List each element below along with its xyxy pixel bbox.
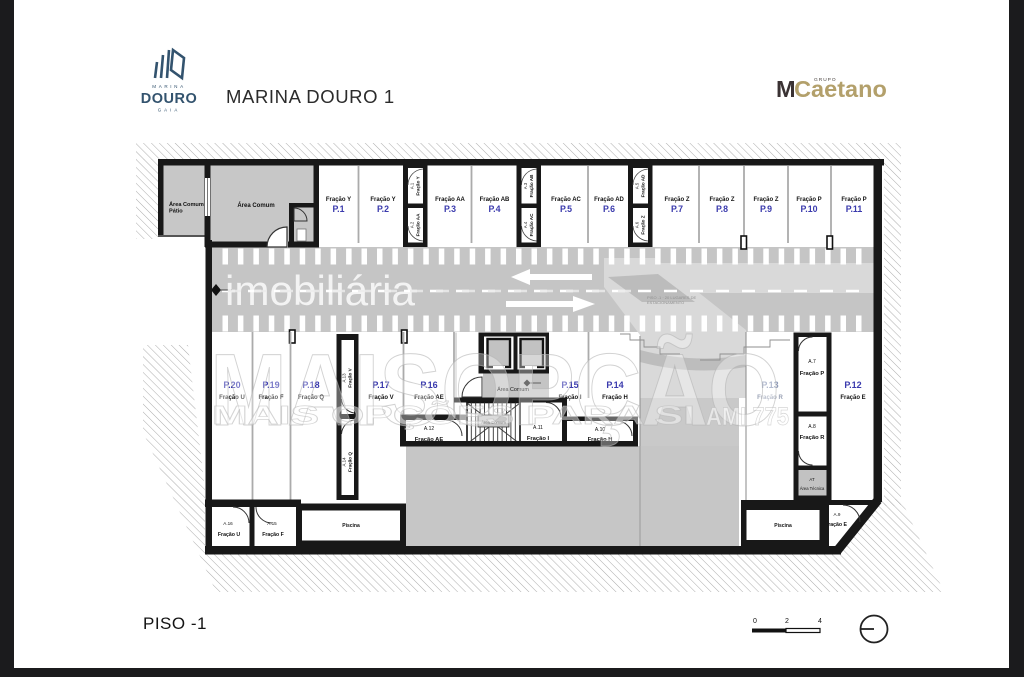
svg-text:MARINA: MARINA xyxy=(152,84,185,89)
svg-text:Fração Z: Fração Z xyxy=(664,197,689,203)
svg-text:MAIS OPÇÕES PARA SI: MAIS OPÇÕES PARA SI xyxy=(212,400,695,430)
svg-text:2: 2 xyxy=(785,618,789,625)
svg-text:P.6: P.6 xyxy=(603,204,615,214)
svg-text:Fração P: Fração P xyxy=(800,371,825,377)
svg-text:Fração AC: Fração AC xyxy=(529,213,534,236)
svg-text:Fração AC: Fração AC xyxy=(551,197,581,203)
svg-text:A.6: A.6 xyxy=(635,221,640,228)
svg-text:P.5: P.5 xyxy=(560,204,572,214)
svg-text:MARINA DOURO 1: MARINA DOURO 1 xyxy=(226,86,395,107)
svg-text:GAIA: GAIA xyxy=(158,108,181,113)
svg-text:PISO -1: PISO -1 xyxy=(143,614,207,633)
svg-text:A.2: A.2 xyxy=(410,221,415,228)
svg-text:P.11: P.11 xyxy=(846,204,863,214)
svg-text:Fração Z: Fração Z xyxy=(641,215,646,234)
svg-text:MCaetano: MCaetano xyxy=(776,76,887,102)
svg-text:A.14: A.14 xyxy=(342,457,347,467)
svg-text:Piscina: Piscina xyxy=(774,523,792,529)
svg-text:Fração AD: Fração AD xyxy=(641,174,646,197)
svg-text:A.4: A.4 xyxy=(523,221,528,228)
svg-text:Fração E: Fração E xyxy=(840,395,865,401)
svg-text:A.8: A.8 xyxy=(808,424,816,430)
svg-text:P.1: P.1 xyxy=(332,204,344,214)
svg-text:Fração AA: Fração AA xyxy=(416,213,421,236)
svg-text:P.4: P.4 xyxy=(488,204,500,214)
svg-text:A.1: A.1 xyxy=(410,182,415,189)
svg-text:A.16: A.16 xyxy=(223,521,233,526)
svg-text:4: 4 xyxy=(818,618,822,625)
svg-text:P.12: P.12 xyxy=(844,380,861,390)
svg-text:Fração Q: Fração Q xyxy=(348,452,353,472)
svg-text:P.3: P.3 xyxy=(444,204,456,214)
svg-text:A.9: A.9 xyxy=(834,512,841,517)
svg-text:Fração AB: Fração AB xyxy=(529,174,534,197)
svg-text:P.9: P.9 xyxy=(760,204,772,214)
svg-text:Fração Y: Fração Y xyxy=(326,197,351,203)
svg-text:Área Comum: Área Comum xyxy=(237,202,274,209)
svg-text:Fração R: Fração R xyxy=(800,435,826,441)
svg-text:Pátio: Pátio xyxy=(169,209,183,215)
svg-text:Piscina: Piscina xyxy=(342,523,360,529)
svg-text:ESTACIONAMENTO: ESTACIONAMENTO xyxy=(647,300,684,305)
svg-text:Fração AB: Fração AB xyxy=(480,197,510,203)
svg-text:Área Técnica: Área Técnica xyxy=(800,486,825,491)
svg-text:Fração F: Fração F xyxy=(262,532,284,538)
svg-text:A.15: A.15 xyxy=(267,521,277,526)
svg-text:P.8: P.8 xyxy=(716,204,728,214)
svg-text:P.10: P.10 xyxy=(801,204,818,214)
svg-text:A.5: A.5 xyxy=(635,182,640,189)
svg-text:Área Comum: Área Comum xyxy=(169,201,204,208)
svg-text:A.3: A.3 xyxy=(523,182,528,189)
svg-text:Fração P: Fração P xyxy=(796,197,821,203)
svg-text:AMI 775: AMI 775 xyxy=(706,403,789,431)
svg-text:DOURO: DOURO xyxy=(141,91,197,107)
svg-text:P.2: P.2 xyxy=(377,204,389,214)
svg-text:Fração Y: Fração Y xyxy=(416,176,421,195)
svg-text:AT: AT xyxy=(809,477,815,482)
svg-text:Fração Z: Fração Z xyxy=(753,197,778,203)
svg-text:Fração U: Fração U xyxy=(218,532,240,538)
svg-text:Fração Z: Fração Z xyxy=(709,197,734,203)
svg-text:Fração Y: Fração Y xyxy=(370,197,395,203)
svg-text:Fração AD: Fração AD xyxy=(594,197,624,203)
svg-text:Fração AA: Fração AA xyxy=(435,197,465,203)
svg-text:P.7: P.7 xyxy=(671,204,683,214)
svg-text:A.7: A.7 xyxy=(808,359,816,365)
svg-text:0: 0 xyxy=(753,618,757,625)
svg-text:Fração P: Fração P xyxy=(841,197,866,203)
